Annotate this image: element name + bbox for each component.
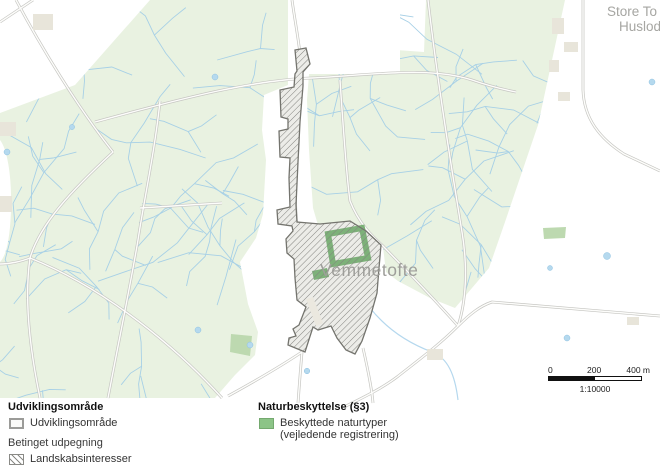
legend-item-udviklingsomraade: Udviklingsområde	[9, 417, 132, 430]
scale-ratio: 1:10000	[548, 384, 642, 394]
place-label-store-to: Store To	[607, 4, 657, 19]
scale-bar: 0 200 400 m 1:10000	[548, 365, 652, 394]
legend-development-title: Udviklingsområde	[8, 401, 132, 414]
legend-development: Udviklingsområde Udviklingsområde Beting…	[8, 401, 132, 466]
place-label-huslodder: Huslodd	[619, 19, 660, 34]
scale-bar-graphic	[548, 376, 642, 381]
protected-nature-swatch	[259, 418, 274, 429]
map-export-view: Vemmetofte Store To Huslodd Udviklingsom…	[0, 0, 660, 467]
scale-tick-200: 200	[587, 365, 601, 375]
scale-ticks: 0 200 400 m	[548, 365, 652, 375]
nature-patch-east	[543, 227, 566, 239]
legend-item-label: Udviklingsområde	[30, 417, 117, 430]
scale-tick-400m: 400 m	[626, 365, 650, 375]
scale-bar-dark-half	[549, 377, 595, 380]
map-canvas[interactable]: Vemmetofte Store To Huslodd	[0, 0, 660, 467]
scale-tick-0: 0	[548, 365, 553, 375]
legend-item-label: Landskabsinteresser	[30, 453, 132, 466]
place-label-vemmetofte: Vemmetofte	[320, 260, 418, 280]
legend-nature: Naturbeskyttelse (§3) Beskyttede naturty…	[258, 401, 399, 442]
scale-bar-light-half	[595, 377, 641, 380]
legend-item-label: Beskyttede naturtyper (vejledende regist…	[280, 417, 399, 442]
legend-nature-label-line2: (vejledende registrering)	[280, 429, 399, 441]
landscape-interest-hatch-swatch	[9, 454, 24, 465]
legend-item-beskyttede-naturtyper: Beskyttede naturtyper (vejledende regist…	[259, 417, 399, 442]
legend-nature-title: Naturbeskyttelse (§3)	[258, 401, 399, 414]
development-area-swatch	[9, 418, 24, 429]
legend-conditional-title: Betinget udpegning	[8, 437, 132, 450]
legend-item-landskabsinteresser: Landskabsinteresser	[9, 453, 132, 466]
legend-nature-label-line1: Beskyttede naturtyper	[280, 417, 387, 429]
